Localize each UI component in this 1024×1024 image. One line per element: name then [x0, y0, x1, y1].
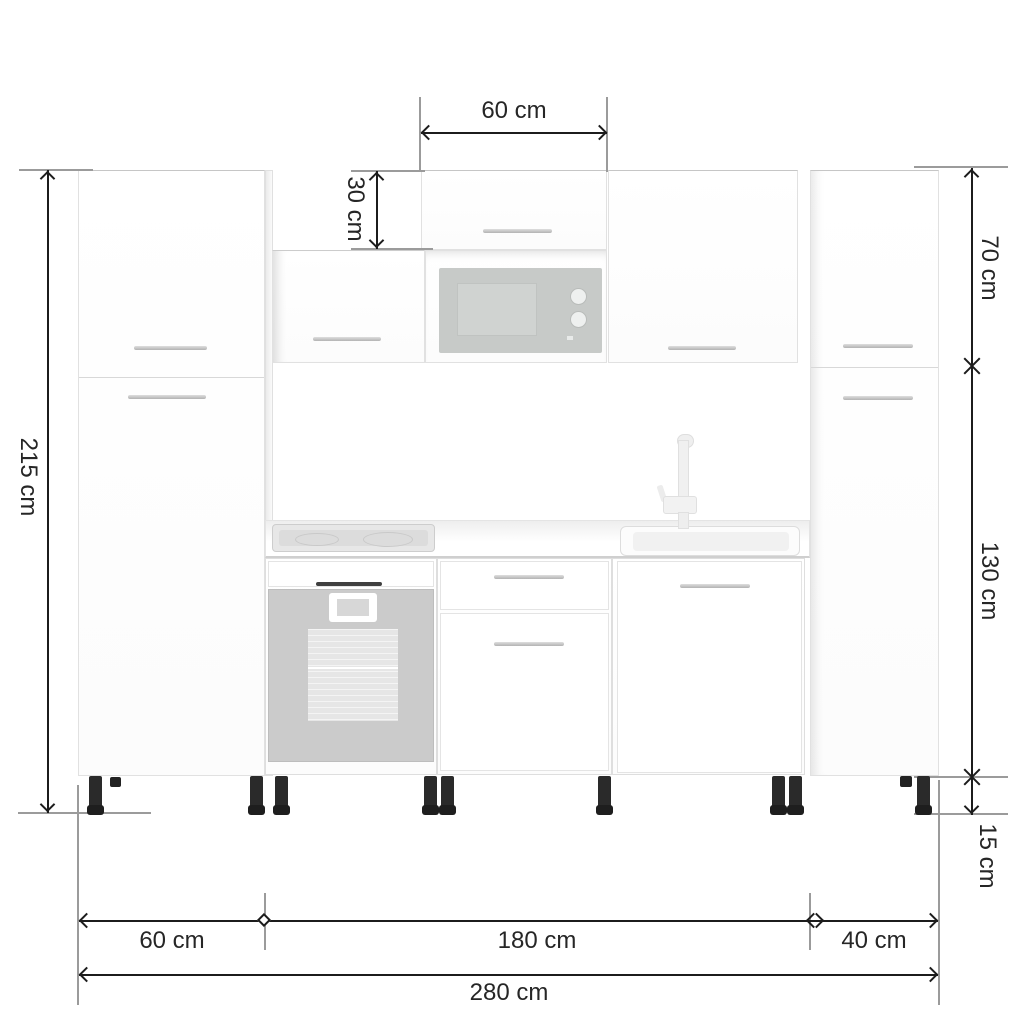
arrowhead-up — [40, 171, 56, 187]
extension-line — [19, 169, 93, 171]
sink-cabinet — [612, 558, 805, 775]
dimension-label: 130 cm — [975, 542, 1003, 621]
dimension-label: 215 cm — [14, 438, 42, 517]
oven-rack-line — [308, 667, 398, 669]
extension-line — [606, 97, 608, 172]
dimension-line — [421, 132, 607, 134]
burner — [295, 533, 339, 546]
extension-line — [914, 166, 1008, 168]
extension-line — [77, 785, 79, 1005]
sink — [620, 526, 800, 556]
microwave-window — [457, 283, 537, 336]
diamond-tick — [257, 913, 271, 927]
wall-cabinet-right — [608, 170, 798, 363]
faucet-neck — [678, 440, 689, 500]
arrowhead-down — [40, 797, 56, 813]
cabinet-door-divider — [811, 367, 938, 368]
door-handle — [128, 395, 206, 399]
cooktop — [272, 524, 435, 552]
dimension-line — [47, 170, 49, 813]
right-tall-cabinet — [810, 170, 939, 776]
oven-cabinet — [265, 558, 437, 775]
cabinet-door-divider — [79, 377, 264, 378]
door-handle — [680, 584, 750, 588]
cabinet-leg — [441, 776, 454, 807]
microwave — [439, 268, 602, 353]
cabinet-leg — [275, 776, 288, 807]
arrowhead-left — [421, 125, 437, 141]
oven-handle — [316, 582, 382, 586]
extension-line — [938, 780, 940, 1005]
cabinet-door — [440, 613, 609, 771]
door-handle — [313, 337, 381, 341]
door-handle — [494, 642, 564, 646]
sink-basin — [633, 532, 789, 551]
cabinet-leg — [598, 776, 611, 807]
arrowhead-up — [964, 169, 980, 185]
drawer-cabinet — [437, 558, 612, 775]
door-handle — [668, 346, 736, 350]
oven-display — [337, 599, 369, 616]
arrowhead-down — [369, 233, 385, 249]
dimension-label: 180 cm — [498, 927, 577, 955]
cabinet-leg — [89, 776, 102, 807]
cabinet-leg — [250, 776, 263, 807]
upper-wall-cabinet — [421, 170, 607, 250]
cabinet-leg — [424, 776, 437, 807]
door-handle — [483, 229, 552, 233]
arrowhead-right — [923, 913, 939, 929]
kitchen-dimension-diagram: 60 cm 30 cm 215 cm 70 cm 130 cm 15 cm 60… — [0, 0, 1024, 1024]
cabinet-back-leg — [110, 777, 121, 787]
dimension-label: 60 cm — [481, 97, 546, 125]
door-handle — [134, 346, 207, 350]
extension-line — [351, 170, 425, 172]
left-tall-cabinet — [78, 170, 265, 776]
microwave-knob — [570, 288, 587, 305]
arrowhead-down — [964, 799, 980, 815]
microwave-knob — [570, 311, 587, 328]
dimension-line — [971, 168, 973, 815]
burner — [363, 532, 413, 547]
dimension-label: 15 cm — [973, 823, 1001, 888]
oven-control-panel — [329, 593, 377, 622]
cabinet-door — [617, 561, 802, 773]
extension-line — [351, 248, 433, 250]
door-handle — [843, 344, 913, 348]
drawer-handle — [494, 575, 564, 579]
oven-front — [268, 589, 434, 762]
microwave-cabinet — [425, 250, 607, 363]
dimension-line — [79, 974, 938, 976]
cabinet-leg — [772, 776, 785, 807]
door-handle — [843, 396, 913, 400]
arrowhead-left — [79, 967, 95, 983]
cabinet-back-leg — [900, 776, 912, 787]
dimension-label: 70 cm — [975, 235, 1003, 300]
arrowhead-left — [79, 913, 95, 929]
extension-line — [18, 812, 151, 814]
wall-cabinet-left — [272, 250, 425, 363]
arrowhead-right — [923, 967, 939, 983]
oven-door-window — [308, 629, 398, 721]
cabinet-leg — [789, 776, 802, 807]
cooktop-surface — [279, 530, 428, 546]
microwave-button — [567, 336, 573, 340]
cabinet-leg — [917, 776, 930, 807]
dimension-label: 30 cm — [341, 176, 369, 241]
drawer-front — [440, 561, 609, 610]
dimension-label: 280 cm — [470, 979, 549, 1007]
extension-line — [419, 97, 421, 172]
faucet-base — [678, 512, 689, 529]
arrowhead-right — [592, 125, 608, 141]
dimension-label: 40 cm — [841, 927, 906, 955]
dimension-label: 60 cm — [139, 927, 204, 955]
arrowhead-up — [369, 172, 385, 188]
